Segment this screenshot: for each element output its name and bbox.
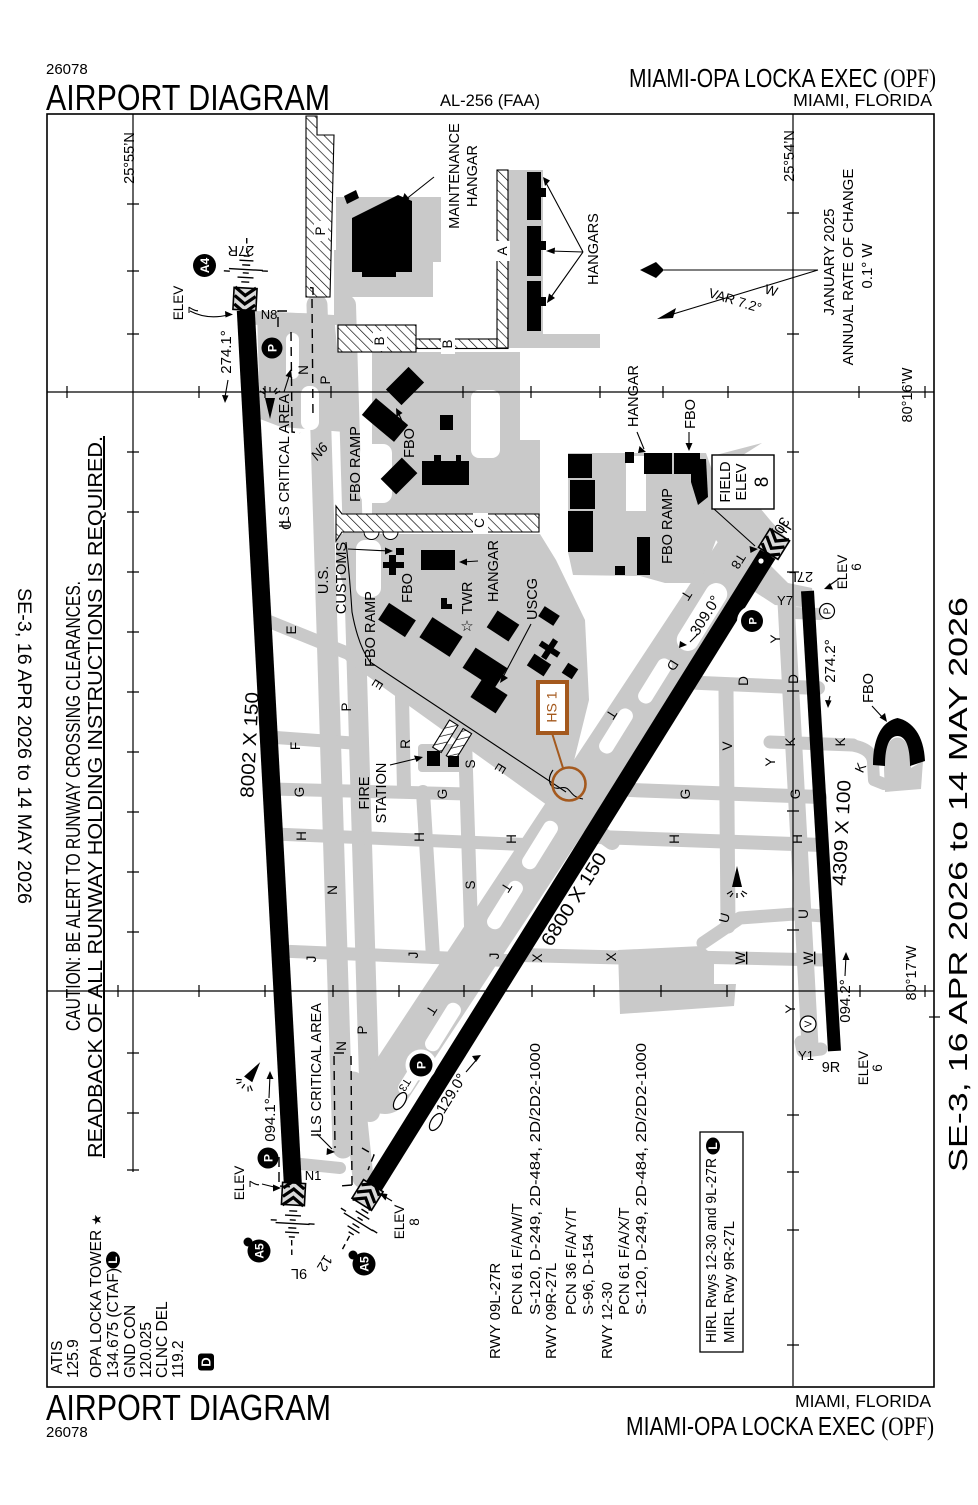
svg-text:A: A xyxy=(495,246,510,255)
svg-text:CLNC DEL: CLNC DEL xyxy=(154,1301,171,1378)
svg-text:094.2°: 094.2° xyxy=(837,979,854,1023)
svg-text:P: P xyxy=(415,1061,429,1069)
svg-text:J: J xyxy=(487,953,502,960)
svg-text:A5: A5 xyxy=(358,1256,372,1272)
svg-text:G: G xyxy=(292,787,307,798)
svg-text:PCN 61 F/A/W/T: PCN 61 F/A/W/T xyxy=(509,1203,526,1315)
svg-text:N: N xyxy=(325,885,340,895)
svg-text:S: S xyxy=(463,880,478,889)
svg-text:FIRE: FIRE xyxy=(357,776,373,809)
svg-text:ELEV: ELEV xyxy=(856,1051,871,1086)
svg-text:MIAMI, FLORIDA: MIAMI, FLORIDA xyxy=(795,1391,931,1411)
svg-text:B: B xyxy=(372,336,387,345)
svg-text:G: G xyxy=(788,789,803,800)
svg-text:125.9: 125.9 xyxy=(65,1339,82,1378)
svg-text:8: 8 xyxy=(752,477,773,488)
svg-text:Y: Y xyxy=(763,757,778,766)
svg-text:ILS CRITICAL AREA: ILS CRITICAL AREA xyxy=(309,1003,325,1137)
svg-text:S-96, D-154: S-96, D-154 xyxy=(580,1234,597,1315)
svg-text:Y: Y xyxy=(783,1004,798,1013)
svg-text:D: D xyxy=(736,676,751,686)
svg-text:HANGAR: HANGAR xyxy=(465,145,481,207)
svg-text:9L: 9L xyxy=(291,1265,307,1281)
svg-text:RWY 12-30: RWY 12-30 xyxy=(599,1282,616,1359)
svg-text:X: X xyxy=(530,953,545,962)
svg-text:W: W xyxy=(733,951,748,964)
svg-text:R: R xyxy=(398,739,413,749)
svg-text:AIRPORT DIAGRAM: AIRPORT DIAGRAM xyxy=(46,77,330,118)
svg-text:V: V xyxy=(720,741,735,750)
svg-text:L: L xyxy=(706,1142,720,1149)
svg-text:HANGARS: HANGARS xyxy=(586,213,602,285)
svg-text:Y1: Y1 xyxy=(798,1048,814,1063)
svg-text:L: L xyxy=(106,1256,120,1263)
svg-text:C: C xyxy=(472,518,487,528)
svg-text:FBO: FBO xyxy=(683,399,699,429)
svg-text:P: P xyxy=(318,375,333,384)
svg-text:PCN 61 F/A/X/T: PCN 61 F/A/X/T xyxy=(616,1207,633,1315)
svg-text:P: P xyxy=(823,607,834,614)
svg-text:FBO: FBO xyxy=(402,428,418,458)
svg-text:U: U xyxy=(796,909,811,919)
svg-text:HANGAR: HANGAR xyxy=(626,365,642,427)
svg-text:FBO: FBO xyxy=(861,673,877,703)
svg-text:H: H xyxy=(294,831,309,841)
svg-text:A4: A4 xyxy=(198,258,212,274)
svg-text:P: P xyxy=(748,617,760,624)
svg-text:H: H xyxy=(667,834,682,844)
svg-text:OPA LOCKA TOWER ★: OPA LOCKA TOWER ★ xyxy=(88,1214,105,1378)
svg-text:9R: 9R xyxy=(822,1060,841,1076)
svg-text:N: N xyxy=(334,1041,349,1051)
svg-text:80°17’W: 80°17’W xyxy=(904,945,920,1000)
svg-text:274.2°: 274.2° xyxy=(822,639,839,683)
svg-text:FBO RAMP: FBO RAMP xyxy=(348,426,364,502)
svg-text:27L: 27L xyxy=(789,568,813,584)
svg-text:S: S xyxy=(463,759,478,768)
svg-text:FBO RAMP: FBO RAMP xyxy=(363,591,379,667)
svg-text:ILS CRITICAL AREA: ILS CRITICAL AREA xyxy=(277,394,293,528)
svg-text:6: 6 xyxy=(870,1064,885,1072)
svg-text:HANGAR: HANGAR xyxy=(486,540,502,602)
svg-text:FIELD: FIELD xyxy=(718,461,734,502)
svg-text:26078: 26078 xyxy=(46,61,88,78)
svg-text:P: P xyxy=(313,226,328,235)
svg-text:ELEV: ELEV xyxy=(734,463,750,500)
svg-text:P: P xyxy=(355,1025,370,1034)
svg-text:GND CON: GND CON xyxy=(122,1305,139,1378)
svg-text:H: H xyxy=(504,834,519,844)
svg-text:SE-3, 16 APR 2026 to 14 MAY: SE-3, 16 APR 2026 to 14 MAY 2026 xyxy=(13,588,34,904)
svg-text:FBO RAMP: FBO RAMP xyxy=(660,488,676,564)
svg-text:V: V xyxy=(804,1020,815,1027)
svg-text:ELEV: ELEV xyxy=(171,286,186,321)
svg-text:7: 7 xyxy=(186,306,201,314)
svg-text:D: D xyxy=(786,674,801,684)
svg-text:N8: N8 xyxy=(261,307,278,322)
svg-text:AL-256 (FAA): AL-256 (FAA) xyxy=(440,92,540,110)
svg-text:HS 1: HS 1 xyxy=(544,691,560,722)
svg-text:S-120, D-249, 2D-484, 2D/2D2-1: S-120, D-249, 2D-484, 2D/2D2-1000 xyxy=(633,1043,650,1315)
svg-text:MIRL Rwy 9R-27L: MIRL Rwy 9R-27L xyxy=(721,1221,738,1343)
svg-text:U.S.: U.S. xyxy=(316,566,332,594)
svg-text:ANNUAL RATE OF CHANGE: ANNUAL RATE OF CHANGE xyxy=(840,169,857,366)
svg-text:D: D xyxy=(199,1357,214,1366)
svg-text:USCG: USCG xyxy=(525,578,541,620)
svg-text:E: E xyxy=(284,625,299,634)
svg-text:J: J xyxy=(304,956,319,963)
svg-text:274.1°: 274.1° xyxy=(218,330,235,374)
svg-text:HIRL Rwys 12-30 and 9L-27R: HIRL Rwys 12-30 and 9L-27R xyxy=(703,1158,720,1343)
svg-text:120.025: 120.025 xyxy=(138,1322,155,1378)
svg-text:K: K xyxy=(833,737,848,746)
svg-text:FBO: FBO xyxy=(400,573,416,603)
svg-text:MIAMI, FLORIDA: MIAMI, FLORIDA xyxy=(793,90,932,110)
svg-text:134.675 (CTAF): 134.675 (CTAF) xyxy=(105,1268,122,1378)
svg-text:AIRPORT DIAGRAM: AIRPORT DIAGRAM xyxy=(46,1387,331,1428)
svg-text:B: B xyxy=(440,339,455,348)
svg-text:X: X xyxy=(604,952,619,961)
svg-text:CAUTION: BE ALERT TO RUNWAY CR: CAUTION: BE ALERT TO RUNWAY CROSSING CLE… xyxy=(63,581,85,1031)
svg-text:K: K xyxy=(783,737,798,746)
svg-text:G: G xyxy=(678,789,693,800)
svg-text:ELEV: ELEV xyxy=(232,1166,247,1201)
svg-text:MIAMI-OPA LOCKA EXEC (OPF): MIAMI-OPA LOCKA EXEC (OPF) xyxy=(626,1411,934,1441)
svg-text:STATION: STATION xyxy=(374,763,390,824)
svg-text:P: P xyxy=(266,344,280,352)
svg-text:ELEV: ELEV xyxy=(392,1205,407,1240)
svg-text:80°16’W: 80°16’W xyxy=(900,367,916,422)
svg-text:H: H xyxy=(790,834,805,844)
svg-text:P: P xyxy=(262,1154,276,1162)
svg-text:25°54’N: 25°54’N xyxy=(782,130,798,182)
svg-text:P: P xyxy=(339,702,354,711)
svg-text:CUSTOMS: CUSTOMS xyxy=(334,542,350,614)
svg-text:ATIS: ATIS xyxy=(49,1341,66,1374)
svg-text:TWR: TWR xyxy=(460,581,476,614)
svg-text:READBACK OF ALL RUNWAY HOLDING: READBACK OF ALL RUNWAY HOLDING INSTRUCTI… xyxy=(85,436,107,1158)
svg-text:RWY 09R-27L: RWY 09R-27L xyxy=(543,1263,560,1359)
svg-text:N1: N1 xyxy=(305,1168,322,1183)
svg-text:26078: 26078 xyxy=(46,1424,88,1441)
svg-text:J: J xyxy=(406,952,421,959)
svg-text:S-120, D-249, 2D-484, 2D/2D2-1: S-120, D-249, 2D-484, 2D/2D2-1000 xyxy=(527,1043,544,1315)
svg-text:094.1°: 094.1° xyxy=(262,1098,279,1142)
svg-text:27R: 27R xyxy=(228,242,255,258)
svg-text:SE-3, 16 APR 2026 to 14 MAY: SE-3, 16 APR 2026 to 14 MAY 2026 xyxy=(943,597,973,1172)
svg-text:W: W xyxy=(801,951,816,964)
svg-text:25°55’N: 25°55’N xyxy=(122,132,138,184)
svg-text:A5: A5 xyxy=(253,1243,267,1259)
svg-text:ELEV: ELEV xyxy=(835,555,850,590)
svg-text:PCN 36 F/A/Y/T: PCN 36 F/A/Y/T xyxy=(563,1207,580,1315)
svg-text:Y7: Y7 xyxy=(777,593,793,608)
svg-text:7: 7 xyxy=(247,1180,262,1188)
svg-text:6: 6 xyxy=(849,563,864,571)
svg-text:MIAMI-OPA LOCKA EXEC (OPF): MIAMI-OPA LOCKA EXEC (OPF) xyxy=(629,63,936,93)
svg-text:0.1° W: 0.1° W xyxy=(859,243,876,289)
svg-text:N: N xyxy=(296,365,311,375)
svg-text:Y: Y xyxy=(768,634,783,643)
svg-text:8: 8 xyxy=(407,1218,422,1226)
svg-text:F: F xyxy=(288,742,303,750)
svg-text:MAINTENANCE: MAINTENANCE xyxy=(447,123,463,229)
svg-text:☆: ☆ xyxy=(460,618,473,635)
svg-text:G: G xyxy=(435,789,450,800)
svg-text:RWY 09L-27R: RWY 09L-27R xyxy=(487,1263,504,1359)
svg-text:JANUARY 2025: JANUARY 2025 xyxy=(821,208,838,315)
svg-text:H: H xyxy=(412,832,427,842)
svg-text:119.2: 119.2 xyxy=(170,1340,187,1378)
